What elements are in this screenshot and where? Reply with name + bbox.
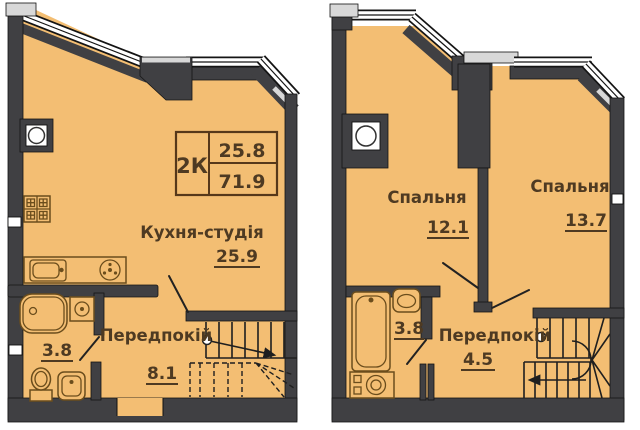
floorplan-svg: 2К 25.8 71.9 Кухня-студія 25.9 Передпокі… xyxy=(0,0,640,430)
window-band-icon xyxy=(510,62,594,79)
wall-bottom xyxy=(332,398,624,422)
bathtub-icon xyxy=(352,292,390,371)
room-label-hallway-2: Передпокій xyxy=(439,326,551,345)
apartment-area-upper: 25.8 xyxy=(219,140,266,162)
wall-hall-stairs xyxy=(186,311,297,321)
wall-bedroom-divider-lower xyxy=(478,168,488,306)
wall-bedroom-divider-upper xyxy=(458,64,490,168)
stove-icon xyxy=(24,196,50,222)
wall-hall-stairs xyxy=(533,308,624,318)
apartment-area-lower: 71.9 xyxy=(219,171,266,193)
shower-tray-icon xyxy=(58,372,85,400)
wall-window-tick xyxy=(612,194,623,204)
room-label-bedroom-2: Спальня xyxy=(530,177,609,196)
parapet-cap xyxy=(330,4,358,17)
bathtub-icon xyxy=(20,294,67,333)
room-area-hallway-1: 8.1 xyxy=(147,364,177,384)
wall-window-tick xyxy=(8,217,21,227)
wall-right xyxy=(610,98,624,420)
sink-faucet-icon xyxy=(59,268,63,272)
parapet-cap xyxy=(6,3,36,16)
plan-level-2: Спальня 12.1 Спальня 13.7 Передпокій 4.5… xyxy=(330,4,624,422)
door-jamb xyxy=(420,364,426,400)
wall-divider-cap xyxy=(474,302,492,312)
room-label-kitchen-studio: Кухня-студія xyxy=(140,223,263,242)
parapet-cap xyxy=(464,52,518,63)
washing-machine-icon xyxy=(70,297,94,321)
room-label-hallway-1: Передпокій xyxy=(100,326,212,345)
washbasin-icon xyxy=(393,289,420,312)
wall-window-tick xyxy=(9,345,22,355)
vent-shaft-icon xyxy=(342,114,388,168)
room-area-bedroom-1: 12.1 xyxy=(427,218,469,238)
room-area-bathroom-1: 3.8 xyxy=(42,341,72,361)
room-area-bedroom-2: 13.7 xyxy=(565,211,607,231)
vent-shaft-icon xyxy=(20,119,53,152)
floorplan-canvas: 2К 25.8 71.9 Кухня-студія 25.9 Передпокі… xyxy=(0,0,640,430)
room-label-bedroom-1: Спальня xyxy=(387,188,466,207)
wall-left xyxy=(8,10,23,420)
plan-level-1: 2К 25.8 71.9 Кухня-студія 25.9 Передпокі… xyxy=(6,3,297,422)
kitchen-counter-icon xyxy=(24,257,126,283)
wall-left xyxy=(332,16,346,420)
wall-right xyxy=(285,94,297,420)
apartment-info-box: 2К 25.8 71.9 xyxy=(176,132,277,195)
room-area-bathroom-2: 3.8 xyxy=(394,319,424,339)
toilet-icon xyxy=(30,368,52,401)
wall-bath-right-lower xyxy=(91,362,101,400)
room-area-hallway-2: 4.5 xyxy=(463,350,493,370)
apartment-type-label: 2К xyxy=(176,154,208,178)
door-jamb xyxy=(428,364,434,400)
washing-machine-icon xyxy=(350,372,394,398)
entrance-opening xyxy=(117,398,163,416)
room-area-kitchen-studio: 25.9 xyxy=(216,247,258,267)
